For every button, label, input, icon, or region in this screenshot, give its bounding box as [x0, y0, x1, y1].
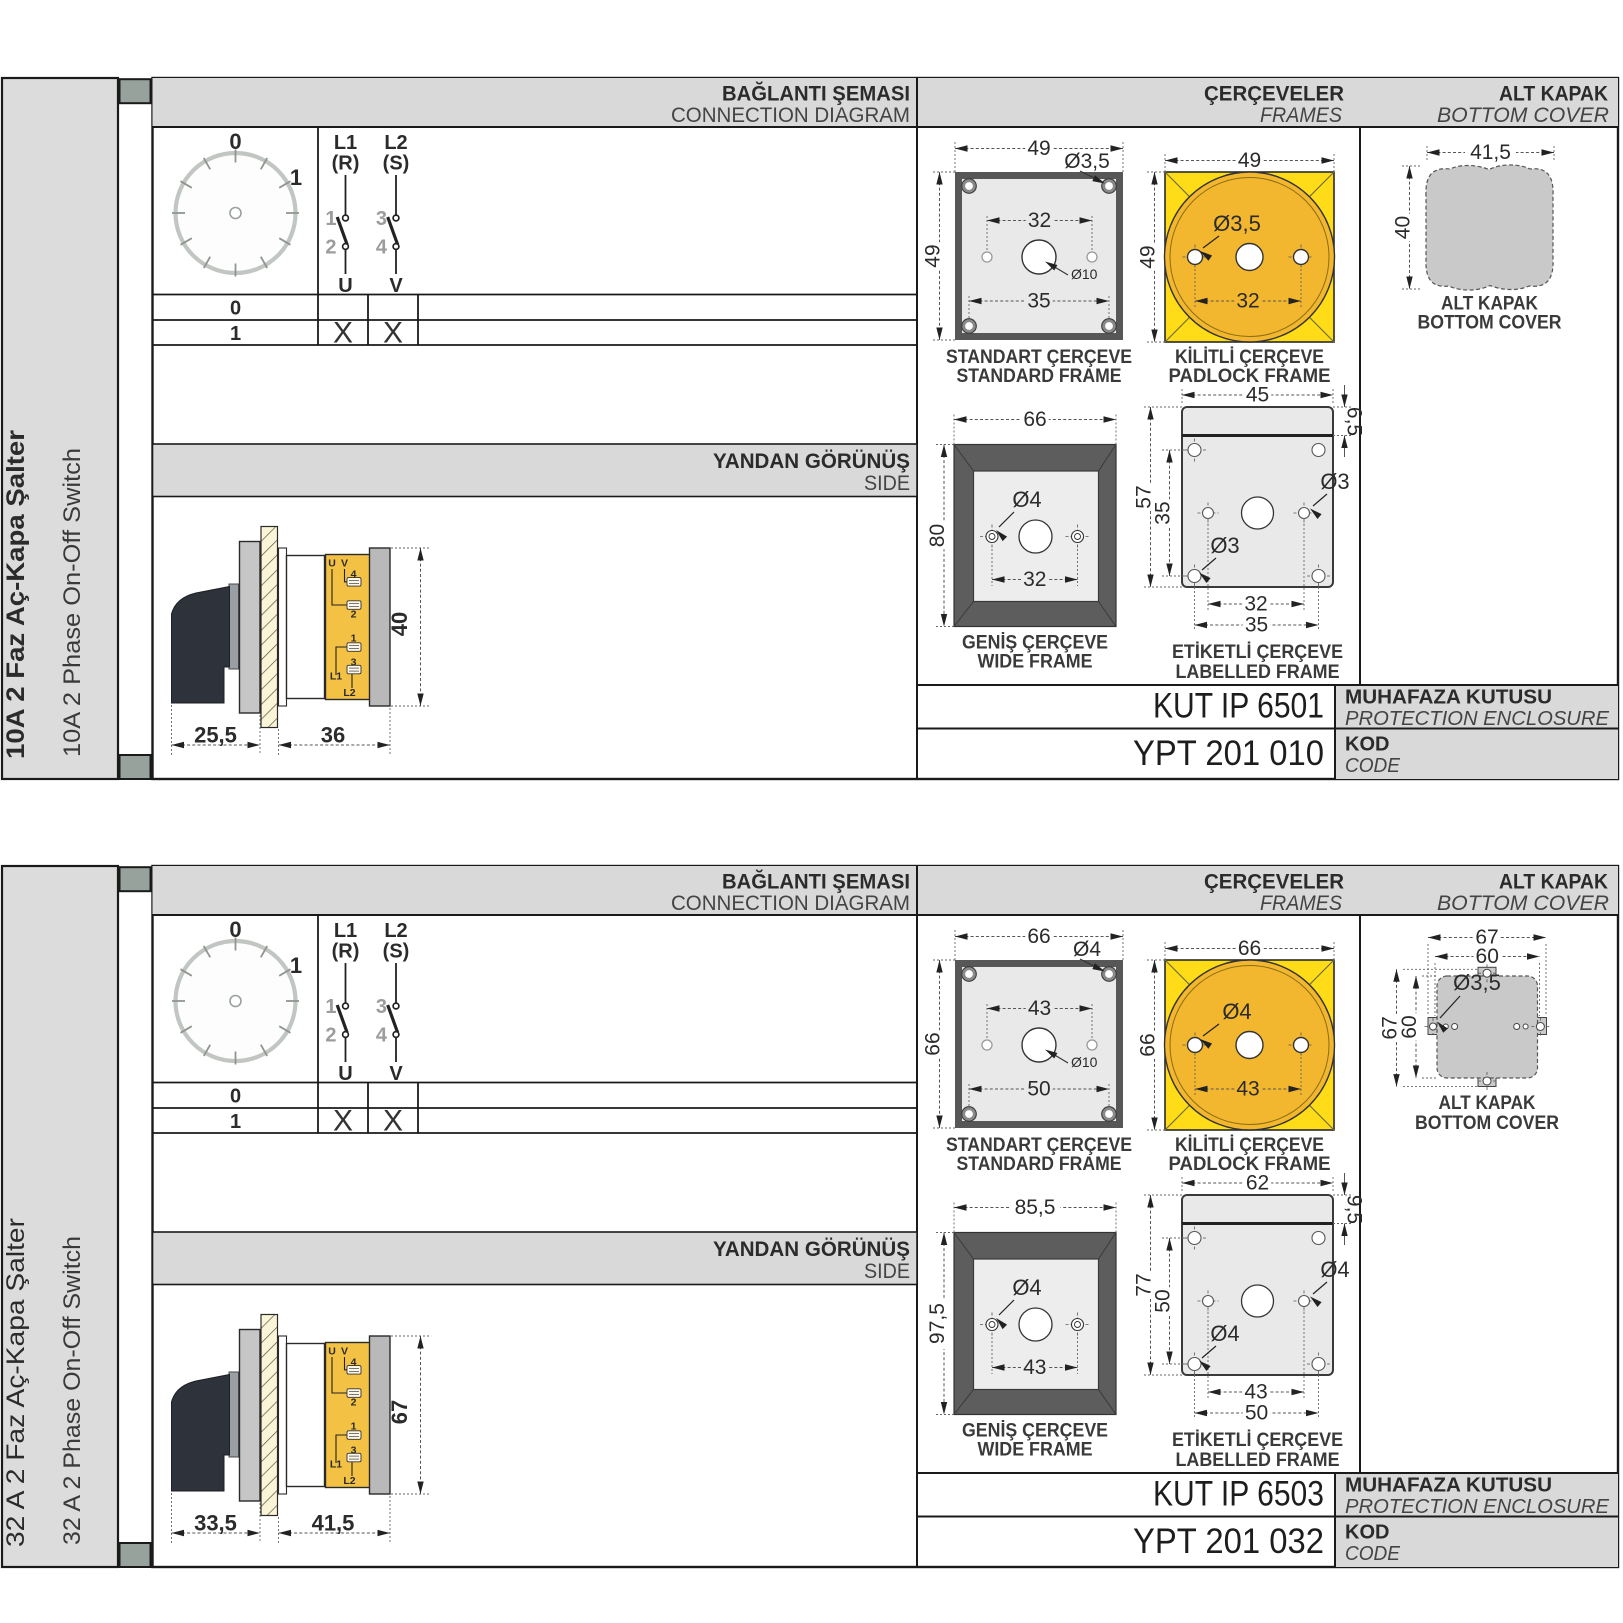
svg-text:62: 62	[1246, 1172, 1269, 1195]
svg-text:YANDAN GÖRÜNÜŞ: YANDAN GÖRÜNÜŞ	[713, 450, 910, 473]
svg-text:V: V	[341, 1346, 348, 1358]
svg-text:33,5: 33,5	[194, 1511, 237, 1536]
svg-text:50: 50	[1152, 1289, 1175, 1312]
svg-text:L1: L1	[330, 1459, 342, 1471]
svg-text:1: 1	[325, 996, 336, 1018]
svg-text:L2: L2	[343, 687, 355, 699]
svg-text:1: 1	[230, 1111, 241, 1133]
svg-text:LABELLED FRAME: LABELLED FRAME	[1176, 1450, 1340, 1471]
svg-text:CODE: CODE	[1345, 1543, 1401, 1565]
svg-text:35: 35	[1245, 614, 1268, 637]
svg-text:GENİŞ ÇERÇEVE: GENİŞ ÇERÇEVE	[962, 633, 1108, 654]
svg-text:BOTTOM COVER: BOTTOM COVER	[1437, 892, 1609, 915]
svg-text:PROTECTION ENCLOSURE: PROTECTION ENCLOSURE	[1345, 1496, 1610, 1518]
svg-text:Ø4: Ø4	[1073, 938, 1101, 961]
svg-text:2: 2	[325, 237, 336, 259]
svg-text:L2: L2	[384, 132, 407, 154]
svg-text:9,5: 9,5	[1343, 1195, 1366, 1224]
svg-text:Ø3: Ø3	[1320, 469, 1349, 494]
svg-text:Ø3,5: Ø3,5	[1453, 970, 1501, 995]
svg-text:U: U	[328, 558, 336, 570]
svg-text:(S): (S)	[383, 941, 410, 963]
svg-text:ÇERÇEVELER: ÇERÇEVELER	[1204, 871, 1344, 894]
svg-text:Ø3,5: Ø3,5	[1213, 211, 1261, 236]
svg-text:KUT IP 6503: KUT IP 6503	[1153, 1475, 1324, 1514]
svg-text:4: 4	[376, 1025, 388, 1047]
svg-text:L1: L1	[334, 920, 357, 942]
svg-text:MUHAFAZA KUTUSU: MUHAFAZA KUTUSU	[1345, 687, 1552, 709]
svg-text:32: 32	[1028, 209, 1051, 232]
svg-text:49: 49	[1137, 245, 1160, 268]
svg-text:0: 0	[230, 1086, 241, 1108]
svg-text:25,5: 25,5	[194, 723, 237, 748]
svg-text:ÇERÇEVELER: ÇERÇEVELER	[1204, 83, 1344, 106]
svg-text:3: 3	[376, 208, 387, 230]
svg-text:ALT KAPAK: ALT KAPAK	[1499, 83, 1608, 106]
svg-text:4: 4	[351, 569, 357, 581]
svg-text:1: 1	[290, 953, 302, 978]
svg-text:ALT KAPAK: ALT KAPAK	[1441, 294, 1538, 315]
svg-text:32 A 2 Phase On-Off Switch: 32 A 2 Phase On-Off Switch	[59, 1236, 86, 1545]
svg-text:GENİŞ ÇERÇEVE: GENİŞ ÇERÇEVE	[962, 1421, 1108, 1442]
svg-text:V: V	[341, 558, 348, 570]
svg-text:32 A 2 Faz Aç-Kapa Şalter: 32 A 2 Faz Aç-Kapa Şalter	[2, 1218, 30, 1547]
svg-text:35: 35	[1027, 290, 1050, 313]
svg-text:(R): (R)	[332, 941, 360, 963]
svg-text:3: 3	[376, 996, 387, 1018]
svg-text:60: 60	[1476, 945, 1499, 968]
svg-text:6,5: 6,5	[1343, 407, 1366, 436]
svg-text:Ø4: Ø4	[1210, 1321, 1239, 1346]
svg-text:X: X	[333, 317, 353, 350]
svg-text:49: 49	[922, 244, 945, 267]
svg-text:KUT IP 6501: KUT IP 6501	[1153, 687, 1324, 726]
svg-text:41,5: 41,5	[312, 1511, 355, 1536]
svg-text:50: 50	[1027, 1078, 1050, 1101]
svg-text:66: 66	[1023, 408, 1046, 431]
svg-text:0: 0	[230, 298, 241, 320]
svg-text:BAĞLANTI ŞEMASI: BAĞLANTI ŞEMASI	[722, 870, 910, 894]
svg-text:2: 2	[351, 1397, 357, 1409]
svg-text:L1: L1	[334, 132, 357, 154]
svg-text:KOD: KOD	[1345, 1522, 1389, 1544]
svg-text:3: 3	[351, 657, 357, 669]
svg-text:YPT 201 010: YPT 201 010	[1133, 734, 1324, 773]
svg-text:66: 66	[1027, 925, 1050, 948]
svg-text:WIDE FRAME: WIDE FRAME	[978, 652, 1093, 673]
svg-text:1: 1	[351, 1421, 357, 1433]
svg-text:36: 36	[321, 723, 345, 748]
svg-text:1: 1	[230, 323, 241, 345]
svg-text:80: 80	[926, 524, 949, 547]
svg-text:STANDARD FRAME: STANDARD FRAME	[957, 366, 1122, 387]
svg-text:66: 66	[1238, 937, 1261, 960]
svg-text:97,5: 97,5	[926, 1303, 949, 1344]
svg-text:CONNECTION DIAGRAM: CONNECTION DIAGRAM	[671, 104, 910, 127]
svg-text:40: 40	[387, 612, 412, 636]
svg-text:60: 60	[1398, 1015, 1421, 1038]
svg-text:66: 66	[922, 1032, 945, 1055]
svg-text:Ø4: Ø4	[1012, 487, 1041, 512]
svg-text:10A 2 Phase On-Off Switch: 10A 2 Phase On-Off Switch	[59, 448, 86, 757]
svg-text:BOTTOM COVER: BOTTOM COVER	[1437, 104, 1609, 127]
svg-text:X: X	[333, 1105, 353, 1138]
svg-text:BOTTOM COVER: BOTTOM COVER	[1418, 313, 1562, 334]
svg-text:4: 4	[376, 237, 388, 259]
svg-text:FRAMES: FRAMES	[1260, 104, 1342, 127]
svg-text:(S): (S)	[383, 153, 410, 175]
svg-text:43: 43	[1028, 997, 1051, 1020]
svg-text:35: 35	[1152, 501, 1175, 524]
svg-text:40: 40	[1392, 216, 1415, 239]
svg-text:U: U	[328, 1346, 336, 1358]
svg-text:41,5: 41,5	[1470, 141, 1511, 164]
svg-text:0: 0	[229, 129, 241, 154]
svg-text:SIDE: SIDE	[864, 1260, 910, 1283]
svg-text:BOTTOM COVER: BOTTOM COVER	[1415, 1113, 1559, 1134]
svg-text:1: 1	[351, 633, 357, 645]
svg-text:ETİKETLİ ÇERÇEVE: ETİKETLİ ÇERÇEVE	[1172, 642, 1343, 663]
svg-text:X: X	[383, 317, 403, 350]
svg-text:45: 45	[1246, 384, 1269, 407]
svg-text:43: 43	[1023, 1356, 1046, 1379]
svg-text:10A 2 Faz Aç-Kapa Şalter: 10A 2 Faz Aç-Kapa Şalter	[2, 430, 30, 759]
svg-text:STANDART ÇERÇEVE: STANDART ÇERÇEVE	[946, 1135, 1132, 1156]
svg-text:X: X	[383, 1105, 403, 1138]
svg-text:66: 66	[1137, 1033, 1160, 1056]
svg-text:(R): (R)	[332, 153, 360, 175]
svg-text:2: 2	[351, 609, 357, 621]
svg-text:4: 4	[351, 1357, 357, 1369]
svg-text:CONNECTION DIAGRAM: CONNECTION DIAGRAM	[671, 892, 910, 915]
svg-text:Ø4: Ø4	[1012, 1275, 1041, 1300]
svg-text:0: 0	[229, 917, 241, 942]
svg-text:L2: L2	[343, 1475, 355, 1487]
svg-text:Ø3,5: Ø3,5	[1064, 150, 1110, 173]
svg-text:1: 1	[290, 165, 302, 190]
svg-text:L2: L2	[384, 920, 407, 942]
svg-text:ALT KAPAK: ALT KAPAK	[1499, 871, 1608, 894]
svg-text:32: 32	[1236, 290, 1259, 313]
svg-text:BAĞLANTI ŞEMASI: BAĞLANTI ŞEMASI	[722, 82, 910, 106]
svg-text:85,5: 85,5	[1015, 1196, 1056, 1219]
svg-text:2: 2	[325, 1025, 336, 1047]
svg-text:PROTECTION ENCLOSURE: PROTECTION ENCLOSURE	[1345, 708, 1610, 730]
svg-text:Ø4: Ø4	[1222, 999, 1251, 1024]
svg-text:YANDAN GÖRÜNÜŞ: YANDAN GÖRÜNÜŞ	[713, 1238, 910, 1261]
svg-text:KOD: KOD	[1345, 734, 1389, 756]
svg-text:3: 3	[351, 1445, 357, 1457]
svg-text:L1: L1	[330, 671, 342, 683]
svg-text:49: 49	[1238, 149, 1261, 172]
svg-text:ALT KAPAK: ALT KAPAK	[1439, 1093, 1536, 1114]
svg-text:Ø10: Ø10	[1071, 1054, 1098, 1070]
svg-text:STANDARD FRAME: STANDARD FRAME	[957, 1154, 1122, 1175]
svg-text:YPT 201 032: YPT 201 032	[1133, 1522, 1324, 1561]
svg-text:SIDE: SIDE	[864, 472, 910, 495]
svg-text:MUHAFAZA KUTUSU: MUHAFAZA KUTUSU	[1345, 1475, 1552, 1497]
svg-text:49: 49	[1027, 137, 1050, 160]
svg-text:1: 1	[325, 208, 336, 230]
svg-text:WIDE FRAME: WIDE FRAME	[978, 1440, 1093, 1461]
svg-text:Ø10: Ø10	[1071, 266, 1098, 282]
svg-text:67: 67	[387, 1400, 412, 1424]
svg-text:LABELLED FRAME: LABELLED FRAME	[1176, 662, 1340, 683]
svg-text:Ø3: Ø3	[1210, 533, 1239, 558]
svg-text:KİLİTLİ ÇERÇEVE: KİLİTLİ ÇERÇEVE	[1175, 1135, 1324, 1156]
svg-text:50: 50	[1245, 1402, 1268, 1425]
svg-text:FRAMES: FRAMES	[1260, 892, 1342, 915]
svg-text:Ø4: Ø4	[1320, 1257, 1349, 1282]
svg-text:STANDART ÇERÇEVE: STANDART ÇERÇEVE	[946, 347, 1132, 368]
svg-text:ETİKETLİ ÇERÇEVE: ETİKETLİ ÇERÇEVE	[1172, 1430, 1343, 1451]
svg-text:32: 32	[1023, 568, 1046, 591]
svg-text:CODE: CODE	[1345, 755, 1401, 777]
svg-text:KİLİTLİ ÇERÇEVE: KİLİTLİ ÇERÇEVE	[1175, 347, 1324, 368]
svg-text:43: 43	[1236, 1078, 1259, 1101]
